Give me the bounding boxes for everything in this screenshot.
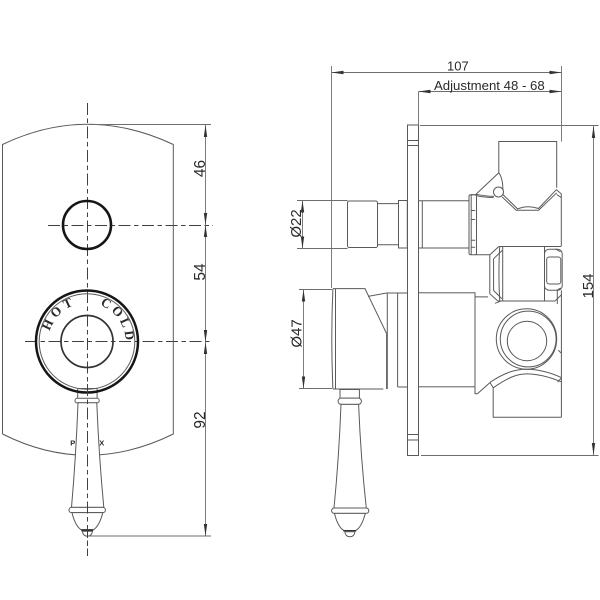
- svg-text:107: 107: [447, 59, 469, 74]
- svg-text:92: 92: [192, 411, 209, 428]
- svg-text:46: 46: [192, 160, 209, 177]
- svg-text:Adjustment 48 - 68: Adjustment 48 - 68: [434, 78, 545, 93]
- svg-text:X: X: [99, 439, 104, 448]
- svg-text:154: 154: [580, 273, 597, 298]
- svg-text:54: 54: [192, 263, 209, 281]
- svg-text:Ø47: Ø47: [288, 319, 305, 347]
- svg-text:P: P: [70, 438, 75, 447]
- svg-text:Ø22: Ø22: [288, 209, 305, 237]
